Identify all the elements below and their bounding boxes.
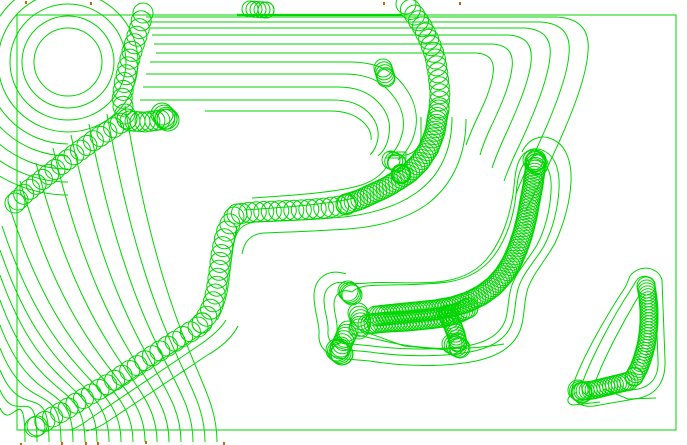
fan-contour-line [0, 250, 109, 442]
loop-circle [90, 126, 110, 146]
cad-viewport[interactable] [0, 0, 687, 445]
loop-circle [131, 11, 151, 31]
loop-circle [70, 140, 90, 160]
contour-line [150, 28, 550, 181]
boss-circle [22, 16, 114, 108]
loop-circle [201, 299, 221, 319]
endpoint-tick [383, 2, 385, 5]
fan-contour-line [125, 106, 217, 442]
contour-line [152, 35, 531, 168]
loop-circle [77, 135, 97, 155]
loop-circle [424, 42, 444, 62]
loop-circle [81, 384, 101, 404]
boss-circle [34, 28, 102, 96]
loop-circle [43, 407, 63, 427]
toolpath-chain-right-chain-top [396, 0, 450, 120]
contour-line [234, 117, 452, 243]
loop-circle [51, 155, 71, 175]
toolpath-chain-corner-vertical [625, 277, 658, 386]
boss-offset-arc [0, 0, 68, 144]
loop-circle [104, 118, 124, 138]
loop-circle [66, 393, 86, 413]
toolpath-chain-bench-left-down [330, 321, 358, 359]
loop-circle [120, 361, 140, 381]
loop-circle [105, 370, 125, 390]
contour-line [146, 17, 588, 210]
loop-circle [135, 351, 155, 371]
loop-circle [173, 327, 193, 347]
boss-circle [0, 0, 138, 132]
contour-offset-lines [0, 0, 665, 442]
loop-circle [97, 122, 117, 142]
loop-circle [127, 356, 147, 376]
fan-contour-line [0, 408, 25, 442]
contour-line [70, 320, 226, 430]
loop-circle [58, 150, 78, 170]
loop-circle [205, 284, 225, 304]
fan-contour-line [71, 135, 181, 442]
loop-circle [188, 317, 208, 337]
toolpath-canvas [0, 0, 687, 445]
toolpath-chain-mid-vertical [192, 207, 244, 333]
loop-circle [426, 49, 446, 69]
loop-circle [158, 336, 178, 356]
contour-line [143, 87, 390, 156]
endpoint-tick [25, 1, 27, 4]
contour-line [252, 168, 386, 198]
loop-circle [45, 160, 65, 180]
fan-contour-line [0, 275, 97, 442]
boss-circle [10, 4, 126, 120]
fan-contour-line [107, 114, 205, 442]
contour-line [205, 111, 371, 140]
endpoint-tick [90, 2, 92, 5]
toolpath-chain-stub-bulb [151, 103, 179, 131]
loop-circle [58, 398, 78, 418]
contour-line [156, 53, 493, 145]
loop-circle [142, 346, 162, 366]
loop-circle [118, 57, 138, 77]
toolpath-chain-corner-horizontal [574, 372, 638, 400]
loop-circle [427, 56, 447, 76]
loop-circle [51, 403, 71, 423]
loop-circle [120, 49, 140, 69]
boss-offset-arc [0, 0, 68, 182]
loop-circle [165, 331, 185, 351]
loop-circle [97, 375, 117, 395]
toolpath-chain-bench-left-top [338, 281, 362, 305]
endpoint-tick [145, 441, 147, 444]
endpoint-tick [459, 2, 461, 5]
toolpath-chain-boss-diagonal [5, 109, 137, 213]
loop-circle [133, 3, 153, 23]
contour-line [86, 326, 238, 431]
loop-circle [74, 389, 94, 409]
